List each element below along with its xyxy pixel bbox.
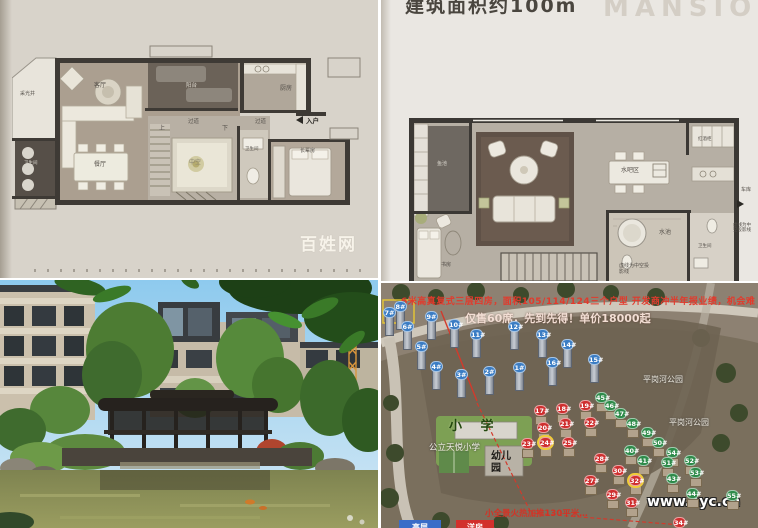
garage-arrow-shape	[737, 200, 744, 208]
building-marker-12: 12#	[508, 321, 521, 332]
tower-footprint	[485, 375, 494, 395]
tab-garden-homes[interactable]: 洋房	[456, 520, 494, 528]
tower-footprint	[403, 330, 412, 350]
room-label-bath: 卫生间	[245, 148, 259, 153]
building-marker-6: 6#	[401, 321, 414, 332]
plan-note-right: 虚线为中空投影线	[733, 224, 755, 234]
building-marker-8: 8#	[394, 301, 407, 312]
floorplan-photo-lower-floor[interactable]: 采光井 客厅 阳台 厨房 入户 过道 过道 上 下 中空 卫生间 卫生间 长辈房…	[0, 0, 378, 278]
tower-footprint	[563, 348, 572, 368]
room-label-garage: 车库	[741, 188, 751, 194]
stair-label-down: 下	[222, 126, 228, 133]
building-marker-49: 49#	[641, 427, 654, 438]
villa-footprint	[585, 428, 597, 437]
tower-footprint	[417, 350, 426, 370]
room-label-elder: 长辈房	[300, 149, 315, 155]
tower-footprint	[510, 330, 519, 350]
room-label-light-well: 采光井	[20, 92, 35, 98]
tower-footprint	[427, 320, 436, 340]
building-marker-10: 10#	[448, 319, 461, 330]
siteplan-photo[interactable]: 6米高真复式三层四房，面积105/114/124三个户型 开发商冲半年报业绩，机…	[381, 283, 758, 528]
building-marker-14: 14#	[561, 339, 574, 350]
room-label-dining: 餐厅	[94, 162, 106, 169]
dark-bath-room	[15, 140, 56, 198]
toilet-room	[240, 130, 268, 198]
villa-footprint	[522, 449, 534, 458]
tower-footprint	[590, 363, 599, 383]
room-label-kitchen: 厨房	[280, 86, 292, 93]
building-marker-25: 25#	[562, 437, 575, 448]
building-marker-48: 48#	[626, 418, 639, 429]
building-marker-17: 17#	[534, 405, 547, 416]
villa-footprint	[607, 500, 619, 509]
bath-room	[690, 213, 734, 281]
villa-footprint	[626, 508, 638, 517]
building-marker-43: 43#	[666, 473, 679, 484]
building-marker-31: 31#	[625, 497, 638, 508]
right-counter	[692, 167, 734, 181]
villa-footprint	[630, 486, 642, 495]
villa-footprint	[638, 466, 650, 475]
villa-footprint	[585, 486, 597, 495]
building-marker-20: 20#	[537, 422, 550, 433]
tower-footprint	[385, 316, 394, 336]
room-label-fish-pond: 鱼池	[437, 162, 447, 168]
villa-footprint	[727, 501, 739, 510]
building-marker-13: 13#	[536, 329, 549, 340]
room-label-bar: 水吧区	[621, 168, 639, 175]
villa-footprint	[563, 448, 575, 457]
villa-footprint	[540, 448, 552, 457]
building-marker-55: 55#	[726, 490, 739, 501]
building-marker-34: 34#	[673, 517, 686, 528]
community-photo-drawing	[0, 280, 378, 528]
villa-footprint	[627, 429, 639, 438]
building-markers-layer: 7#8#9#6#10#5#11#12#13#14#4#3#2#1#16#15#1…	[381, 283, 758, 528]
tower-footprint	[538, 338, 547, 358]
tower-footprint	[515, 371, 524, 391]
page-edge-shadow	[0, 0, 12, 278]
building-marker-11: 11#	[470, 329, 483, 340]
closet-strip	[414, 124, 428, 216]
entry-arrow-shape	[296, 116, 303, 124]
building-marker-30: 30#	[612, 465, 625, 476]
building-marker-21: 21#	[559, 418, 572, 429]
building-marker-4: 4#	[430, 361, 443, 372]
living-rug-set	[476, 132, 574, 246]
villa-footprint	[667, 484, 679, 493]
room-label-bath2: 卫生间	[24, 162, 38, 167]
building-marker-1: 1#	[513, 362, 526, 373]
building-marker-24: 24#	[539, 437, 552, 448]
page-edge-shadow-2	[381, 0, 391, 281]
tab-highrise[interactable]: 高层	[399, 520, 441, 528]
fish-pond-room	[428, 126, 469, 212]
room-label-entry: 入户	[306, 118, 319, 125]
floorplan-photo-basement[interactable]: 建筑面积约100m MANSION	[381, 0, 758, 281]
photo-grid: 采光井 客厅 阳台 厨房 入户 过道 过道 上 下 中空 卫生间 卫生间 长辈房…	[0, 0, 758, 528]
building-marker-32: 32#	[629, 475, 642, 486]
building-marker-29: 29#	[606, 489, 619, 500]
room-label-deck: 阳台	[186, 83, 197, 89]
building-marker-47: 47#	[614, 408, 627, 419]
tower-footprint	[450, 328, 459, 348]
tower-footprint	[432, 370, 441, 390]
building-marker-41: 41#	[637, 455, 650, 466]
building-marker-44: 44#	[686, 488, 699, 499]
building-marker-18: 18#	[556, 403, 569, 414]
tower-footprint	[457, 378, 466, 398]
building-marker-23: 23#	[521, 438, 534, 449]
room-label-hall1: 过道	[188, 119, 199, 125]
villa-footprint	[653, 448, 665, 457]
building-marker-51: 51#	[661, 457, 674, 468]
footer-letter-row	[34, 269, 370, 272]
stair-label-up: 上	[159, 126, 165, 133]
stairs	[501, 253, 597, 281]
building-marker-2: 2#	[483, 366, 496, 377]
room-label-pool: 水池	[659, 230, 671, 237]
building-marker-3: 3#	[455, 369, 468, 380]
building-marker-19: 19#	[579, 400, 592, 411]
building-marker-28: 28#	[594, 453, 607, 464]
building-marker-50: 50#	[652, 437, 665, 448]
building-marker-53: 53#	[689, 467, 702, 478]
community-photo[interactable]	[0, 280, 378, 528]
villa-footprint	[690, 478, 702, 487]
room-label-study: 书房	[441, 263, 451, 269]
villa-footprint	[595, 464, 607, 473]
villa-footprint	[625, 456, 637, 465]
room-label-living: 客厅	[94, 83, 106, 90]
light-well-room	[12, 58, 56, 140]
plan-note-bottom: 虚线为中空投影线	[619, 264, 649, 275]
room-label-wine: 红酒柜	[698, 138, 712, 143]
building-marker-22: 22#	[584, 417, 597, 428]
room-label-void: 中空	[189, 160, 201, 167]
villa-footprint	[687, 499, 699, 508]
garden-hatch	[15, 198, 56, 209]
building-marker-16: 16#	[546, 357, 559, 368]
baixing-watermark: 百姓网	[300, 230, 357, 255]
building-marker-27: 27#	[584, 475, 597, 486]
building-marker-52: 52#	[684, 455, 697, 466]
tower-footprint	[548, 366, 557, 386]
building-marker-40: 40#	[624, 445, 637, 456]
villa-footprint	[613, 476, 625, 485]
tower-footprint	[472, 338, 481, 358]
room-label-hall2: 过道	[255, 119, 266, 125]
building-marker-9: 9#	[425, 311, 438, 322]
building-marker-15: 15#	[588, 354, 601, 365]
pond-water	[0, 470, 378, 528]
building-marker-5: 5#	[415, 341, 428, 352]
room-label-bath: 卫生间	[698, 245, 712, 250]
